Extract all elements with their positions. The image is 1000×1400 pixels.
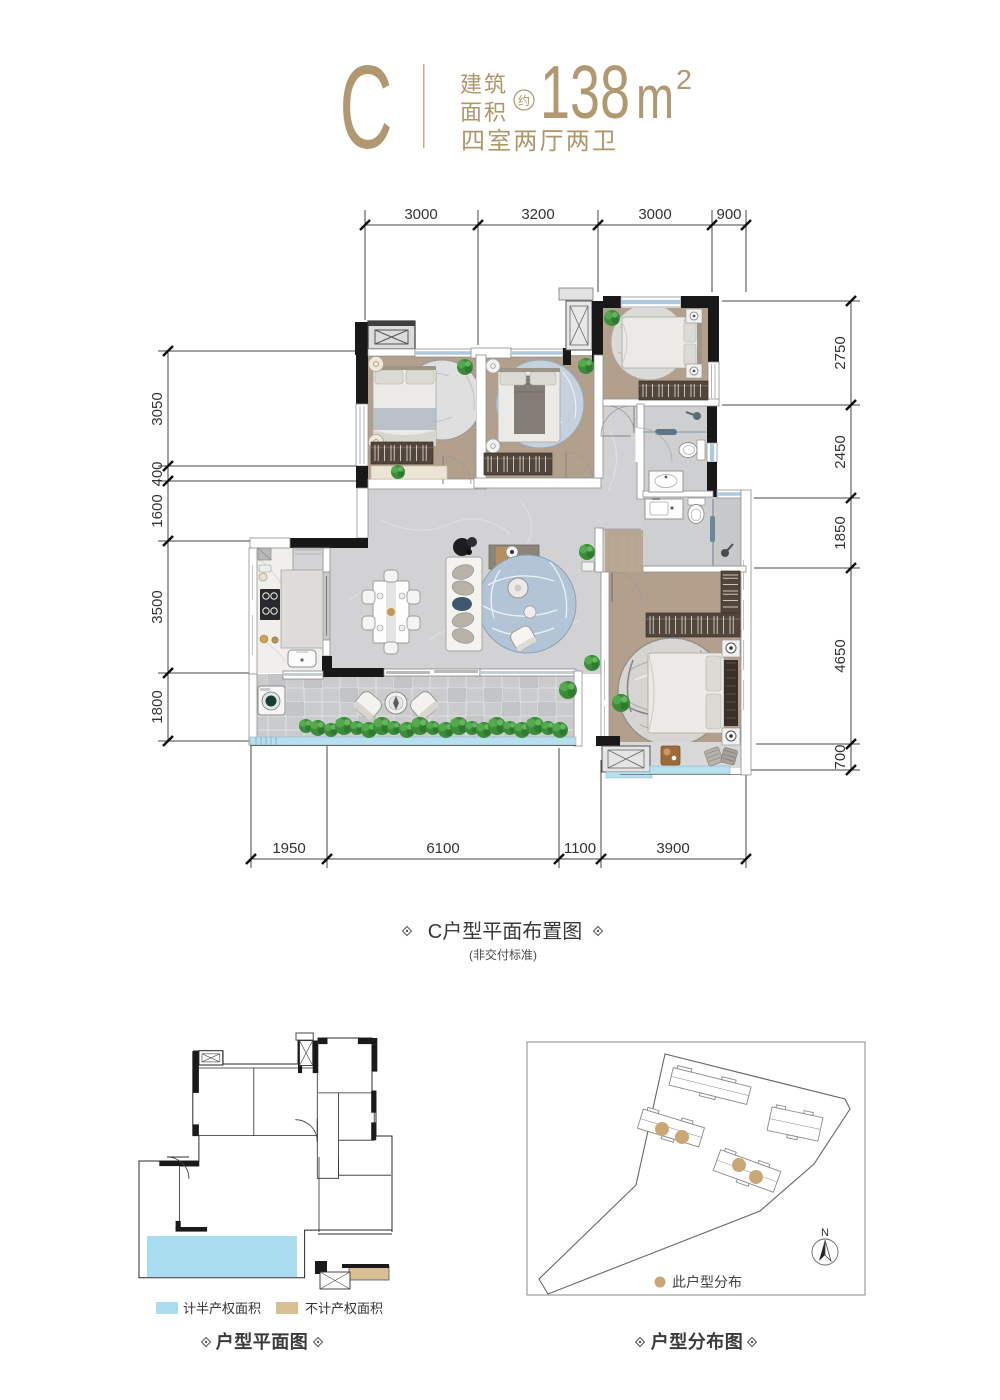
svg-text:1850: 1850 [832, 516, 849, 549]
svg-text:6100: 6100 [426, 840, 459, 857]
svg-text:户型平面图: 户型平面图 [216, 1331, 309, 1352]
svg-text:138: 138 [540, 50, 630, 134]
svg-text:约: 约 [518, 93, 530, 108]
svg-text:3000: 3000 [638, 206, 671, 223]
svg-text:900: 900 [716, 206, 741, 223]
svg-text:700: 700 [832, 744, 849, 769]
svg-text:4650: 4650 [832, 639, 849, 672]
svg-text:C: C [339, 40, 392, 173]
svg-text:建筑: 建筑 [460, 72, 508, 97]
svg-text:2450: 2450 [832, 435, 849, 468]
svg-text:m: m [636, 64, 674, 131]
svg-text:2: 2 [676, 64, 692, 95]
svg-text:C户型平面布置图: C户型平面布置图 [428, 920, 582, 943]
svg-text:(非交付标准): (非交付标准) [469, 947, 537, 962]
svg-text:3900: 3900 [656, 840, 689, 857]
svg-text:3200: 3200 [521, 206, 554, 223]
svg-text:400: 400 [149, 461, 166, 486]
svg-text:面积: 面积 [460, 100, 508, 125]
svg-text:2750: 2750 [832, 336, 849, 369]
svg-text:不计产权面积: 不计产权面积 [305, 1301, 383, 1316]
svg-text:户型分布图: 户型分布图 [651, 1331, 744, 1352]
svg-text:此户型分布: 此户型分布 [672, 1274, 742, 1290]
svg-text:N: N [821, 1227, 829, 1239]
svg-text:1950: 1950 [272, 840, 305, 857]
svg-text:1800: 1800 [149, 690, 166, 723]
svg-text:3500: 3500 [149, 590, 166, 623]
svg-text:计半产权面积: 计半产权面积 [183, 1301, 261, 1316]
svg-text:3000: 3000 [404, 206, 437, 223]
svg-text:1600: 1600 [149, 494, 166, 527]
svg-text:3050: 3050 [149, 392, 166, 425]
svg-text:四室两厅两卫: 四室两厅两卫 [461, 128, 618, 155]
svg-text:1100: 1100 [564, 840, 596, 857]
